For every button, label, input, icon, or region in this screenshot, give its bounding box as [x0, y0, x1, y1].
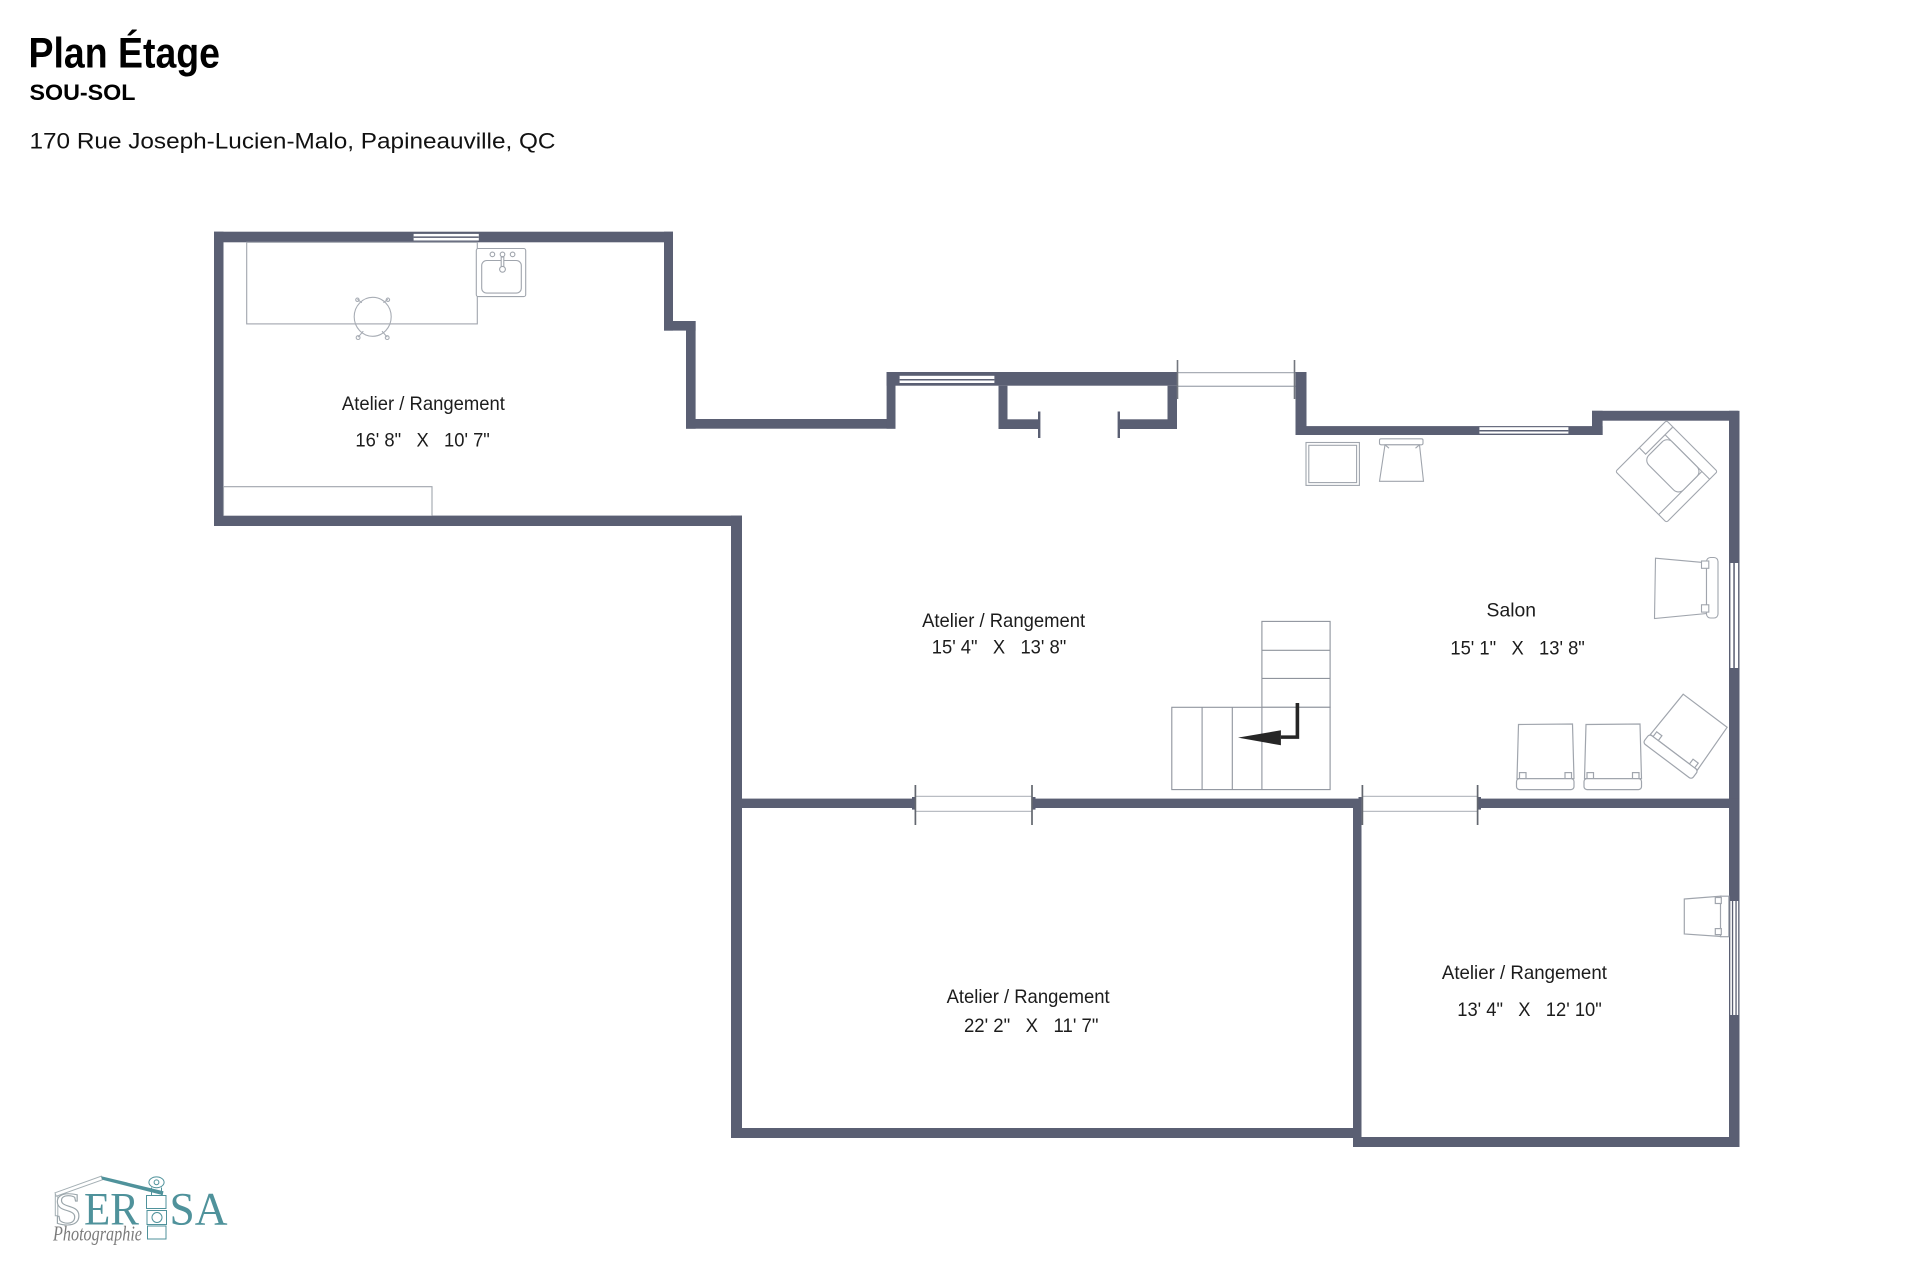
- svg-text:170 Rue Joseph-Lucien-Malo, Pa: 170 Rue Joseph-Lucien-Malo, Papineauvill…: [30, 129, 556, 154]
- svg-text:16' 8" X 10' 7": 16' 8" X 10' 7": [355, 430, 490, 452]
- svg-text:Atelier / Rangement: Atelier / Rangement: [922, 610, 1086, 632]
- svg-text:Salon: Salon: [1487, 600, 1537, 622]
- svg-text:SA: SA: [170, 1184, 228, 1236]
- svg-text:15' 1" X 13' 8": 15' 1" X 13' 8": [1450, 638, 1585, 660]
- svg-text:Atelier / Rangement: Atelier / Rangement: [947, 986, 1111, 1008]
- svg-text:22' 2" X 11' 7": 22' 2" X 11' 7": [964, 1015, 1099, 1037]
- svg-text:15' 4" X 13' 8": 15' 4" X 13' 8": [932, 637, 1067, 659]
- svg-text:Plan Étage: Plan Étage: [29, 30, 221, 78]
- svg-text:13' 4" X 12' 10": 13' 4" X 12' 10": [1457, 999, 1602, 1021]
- svg-text:Atelier / Rangement: Atelier / Rangement: [1442, 962, 1608, 984]
- svg-text:Photographie: Photographie: [52, 1222, 142, 1246]
- svg-text:SOU-SOL: SOU-SOL: [30, 80, 136, 105]
- svg-text:Atelier / Rangement: Atelier / Rangement: [342, 393, 506, 415]
